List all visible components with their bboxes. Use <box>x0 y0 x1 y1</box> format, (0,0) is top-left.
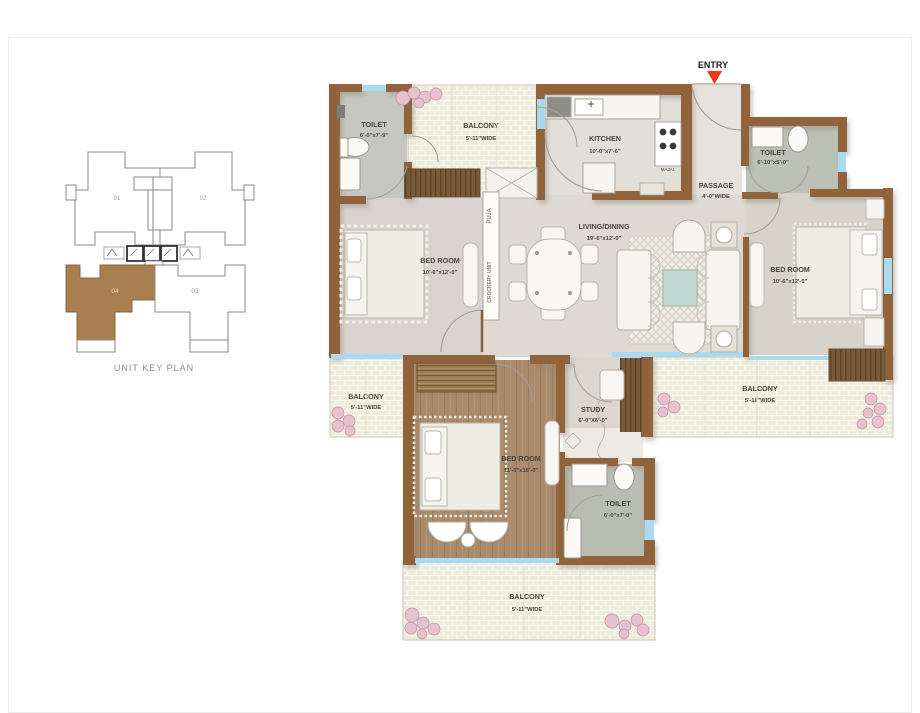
svg-text:UNIT KEY PLAN: UNIT KEY PLAN <box>114 363 194 373</box>
svg-text:5'-11"WIDE: 5'-11"WIDE <box>512 607 543 613</box>
svg-text:KITCHEN: KITCHEN <box>589 134 621 143</box>
svg-text:01: 01 <box>114 196 121 202</box>
svg-text:ENTRY: ENTRY <box>698 60 728 70</box>
svg-text:BALCONY: BALCONY <box>742 384 778 393</box>
svg-text:PASSAGE: PASSAGE <box>699 181 734 190</box>
svg-text:BALCONY: BALCONY <box>463 121 499 130</box>
svg-text:TOILET: TOILET <box>605 499 631 508</box>
svg-text:LIVING/DINING: LIVING/DINING <box>578 222 630 231</box>
svg-text:19'-6"x12'-0": 19'-6"x12'-0" <box>587 236 622 242</box>
svg-text:04: 04 <box>111 288 119 295</box>
svg-text:6'-10"x5'-0": 6'-10"x5'-0" <box>757 160 789 166</box>
svg-text:BALCONY: BALCONY <box>509 592 545 601</box>
svg-text:10'-0"x7'-6": 10'-0"x7'-6" <box>589 149 621 155</box>
svg-text:BED ROOM: BED ROOM <box>501 454 541 463</box>
svg-text:6'-0"X6'-0": 6'-0"X6'-0" <box>579 418 608 424</box>
svg-text:TOILET: TOILET <box>361 120 387 129</box>
svg-text:STUDY: STUDY <box>581 405 606 414</box>
svg-text:BED ROOM: BED ROOM <box>420 256 460 265</box>
svg-text:CROCKERY UNIT: CROCKERY UNIT <box>487 261 493 302</box>
svg-text:BED ROOM: BED ROOM <box>770 265 810 274</box>
svg-text:5'-11"WIDE: 5'-11"WIDE <box>466 136 497 142</box>
svg-text:10'-6"x12'-0": 10'-6"x12'-0" <box>773 279 808 285</box>
svg-text:02: 02 <box>200 196 207 202</box>
svg-text:10'-6"x12'-0": 10'-6"x12'-0" <box>423 270 458 276</box>
svg-text:4'-0"WIDE: 4'-0"WIDE <box>702 194 730 200</box>
svg-text:5'-11"WIDE: 5'-11"WIDE <box>745 398 776 404</box>
svg-text:PUJA: PUJA <box>487 208 493 223</box>
svg-text:6'-0"x7'-0": 6'-0"x7'-0" <box>604 513 632 519</box>
svg-text:MAJAL: MAJAL <box>661 167 676 172</box>
svg-text:11'-0"x15'-0": 11'-0"x15'-0" <box>504 468 539 474</box>
svg-text:TOILET: TOILET <box>760 148 786 157</box>
svg-text:03: 03 <box>191 288 199 295</box>
svg-text:6'-0"x7'-9": 6'-0"x7'-9" <box>360 133 388 139</box>
